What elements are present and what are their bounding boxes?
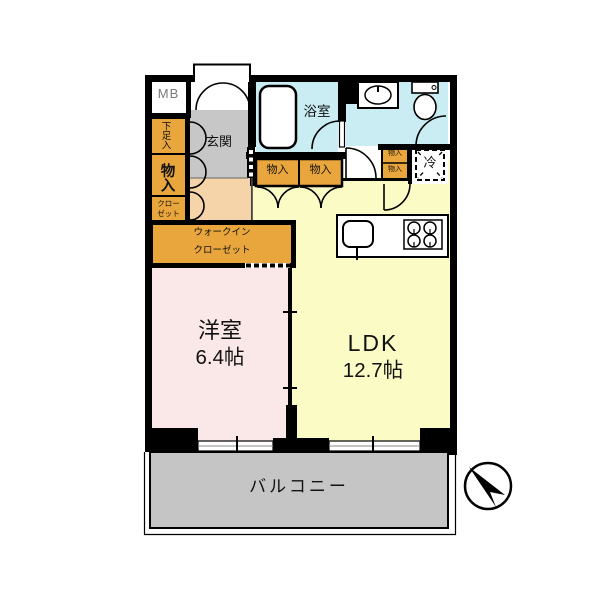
compass-north-icon xyxy=(465,463,511,509)
floorplan-graphics xyxy=(0,0,605,606)
kitchen-sink-icon xyxy=(343,221,373,247)
ldk-name: LDK xyxy=(302,330,444,356)
entrance-step xyxy=(247,147,255,178)
refrigerator-label: 冷 xyxy=(421,156,439,171)
storage-small-label-1: 物入 xyxy=(382,150,408,158)
closet-left-line2: ゼット xyxy=(157,209,180,218)
closet-left-label: クロー ゼット xyxy=(151,199,186,219)
wic-opening xyxy=(245,263,290,268)
closet-left-line1: クロー xyxy=(157,199,180,208)
floorplan-canvas: { "plan": { "meter_box": "MB", "entrance… xyxy=(0,0,605,606)
storage-small-label-2: 物入 xyxy=(382,166,408,174)
kitchen-counter xyxy=(337,215,448,260)
balcony-label: バルコニー xyxy=(199,477,399,497)
hall-ldk-edge xyxy=(251,178,253,220)
walk-in-closet-label: ウォークイン クローゼット xyxy=(153,228,291,257)
storage-band-label-2: 物入 xyxy=(299,164,342,177)
entrance-label: 玄関 xyxy=(192,135,246,150)
toilet-icon xyxy=(412,82,438,120)
storage-left-label: 物入 xyxy=(159,158,174,196)
western-room-name: 洋室 xyxy=(150,318,290,343)
washbasin-icon xyxy=(358,82,398,108)
storage-band-label-1: 物入 xyxy=(256,164,299,177)
entrance-alcove xyxy=(194,64,250,82)
gas-stove-icon xyxy=(404,220,442,249)
bathroom-label: 浴室 xyxy=(294,104,340,120)
bathroom-door-leaf xyxy=(340,121,345,147)
meter-box-label: MB xyxy=(151,87,186,102)
ldk-label: LDK 12.7帖 xyxy=(302,330,444,383)
ldk-size: 12.7帖 xyxy=(302,359,444,383)
western-room-label: 洋室 6.4帖 xyxy=(150,318,290,370)
western-room-size: 6.4帖 xyxy=(150,346,290,370)
shoe-cabinet-label: 下足入 xyxy=(160,116,170,154)
wic-line2: クローゼット xyxy=(153,246,291,257)
entrance-door-arc xyxy=(196,83,250,110)
wic-line1: ウォークイン xyxy=(153,228,291,239)
bathtub-icon xyxy=(260,86,296,148)
